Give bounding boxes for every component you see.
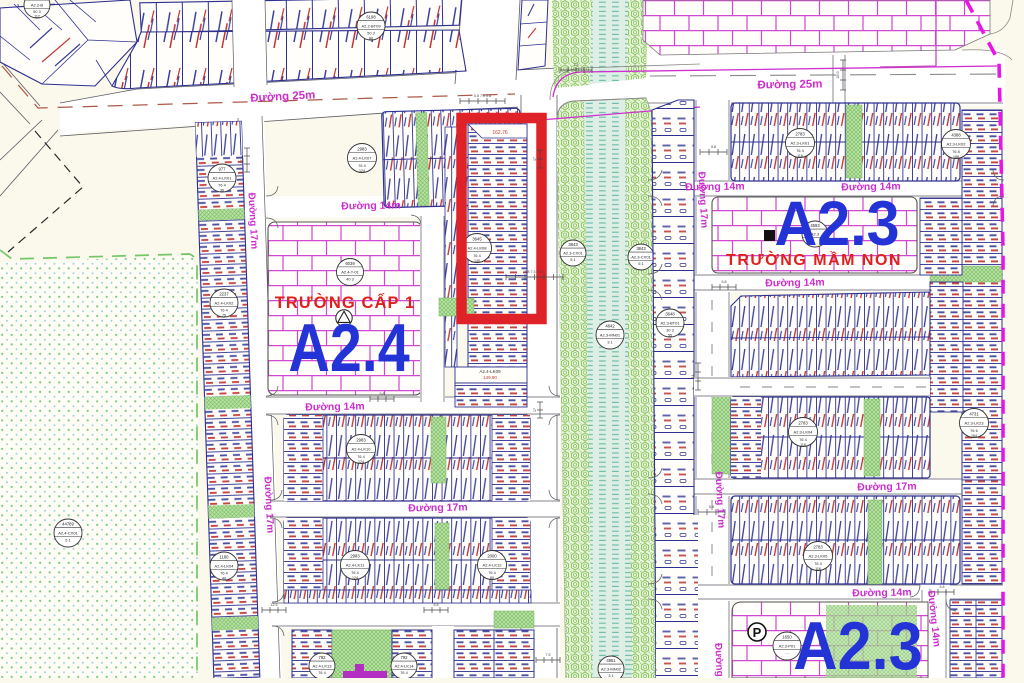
svg-text:76 4: 76 4 (358, 164, 365, 168)
svg-text:17: 17 (533, 408, 537, 412)
svg-text:76 6: 76 6 (970, 429, 977, 433)
svg-text:A2.3-LK23: A2.3-LK23 (965, 421, 985, 426)
svg-text:792: 792 (319, 655, 327, 660)
svg-text:A2.3-LK01: A2.3-LK01 (791, 141, 811, 146)
svg-text:7.5: 7.5 (574, 63, 579, 67)
svg-text:76 4: 76 4 (218, 184, 225, 188)
svg-text:A2.3: A2.3 (793, 607, 922, 678)
svg-text:60: 60 (369, 36, 373, 40)
svg-text:76 4: 76 4 (814, 562, 821, 566)
svg-text:124: 124 (359, 169, 365, 173)
svg-text:A2.3-LK02: A2.3-LK02 (947, 142, 967, 147)
svg-text:3843: 3843 (636, 246, 646, 251)
svg-text:A2.4-LK09: A2.4-LK09 (479, 369, 501, 374)
svg-text:76 4: 76 4 (220, 572, 227, 576)
svg-text:A2.4-T-01: A2.4-T-01 (341, 270, 359, 275)
svg-text:184: 184 (971, 434, 977, 438)
svg-text:5.8 7.5 5 5.0: 5.8 7.5 5 5.0 (525, 270, 545, 274)
svg-text:A2.4-LK10: A2.4-LK10 (352, 447, 372, 452)
svg-text:40: 40 (222, 576, 226, 580)
svg-text:3 1: 3 1 (608, 674, 613, 678)
svg-text:140: 140 (474, 259, 480, 263)
svg-text:TRƯỜNG CẤP 1: TRƯỜNG CẤP 1 (275, 293, 416, 312)
svg-text:5.8: 5.8 (434, 603, 439, 607)
svg-text:A2.3-LK05: A2.3-LK05 (809, 554, 829, 559)
svg-text:A2.4-LK12: A2.4-LK12 (483, 563, 503, 568)
svg-text:2000: 2000 (487, 553, 497, 558)
svg-text:116: 116 (815, 567, 821, 571)
svg-text:36: 36 (220, 188, 224, 192)
svg-text:7.5: 7.5 (546, 653, 551, 657)
svg-text:60: 60 (490, 576, 494, 580)
svg-text:A2.4-LK01: A2.4-LK01 (213, 176, 233, 181)
svg-text:A2.3-BT01: A2.3-BT01 (660, 321, 680, 326)
svg-text:5.8: 5.8 (940, 585, 945, 589)
svg-text:5.8 7.0 5.8: 5.8 7.0 5.8 (474, 94, 491, 98)
svg-text:2237: 2237 (219, 292, 229, 297)
svg-text:Đường 14m: Đường 14m (852, 586, 912, 599)
svg-text:5.8: 5.8 (380, 392, 385, 396)
svg-text:Đường 17m: Đường 17m (857, 480, 917, 493)
svg-text:Đường 14m: Đường 14m (685, 180, 745, 193)
svg-text:3843: 3843 (568, 242, 578, 247)
svg-text:162.76: 162.76 (492, 130, 508, 136)
svg-text:44789: 44789 (62, 522, 74, 527)
svg-text:76 4: 76 4 (488, 571, 495, 575)
svg-text:2783: 2783 (795, 131, 805, 136)
svg-text:5.8: 5.8 (711, 145, 716, 149)
svg-text:75: 75 (222, 313, 226, 317)
svg-text:Đường 14m: Đường 14m (341, 199, 401, 212)
svg-text:76 4: 76 4 (220, 309, 227, 313)
svg-text:4842: 4842 (605, 324, 615, 329)
svg-text:A2.3-MN01: A2.3-MN01 (600, 333, 621, 338)
svg-text:3645: 3645 (472, 236, 482, 241)
svg-text:116: 116 (800, 443, 806, 447)
svg-text:5 1: 5 1 (65, 539, 70, 543)
svg-text:A2.4-LK08: A2.4-LK08 (468, 246, 488, 251)
svg-text:A2.4-LK14: A2.4-LK14 (395, 664, 415, 669)
svg-text:Đường 14m: Đường 14m (305, 400, 365, 413)
svg-text:76 4: 76 4 (318, 671, 325, 675)
svg-text:3 1: 3 1 (607, 341, 612, 345)
svg-text:116: 116 (797, 154, 803, 158)
svg-text:55: 55 (668, 333, 672, 337)
svg-text:112: 112 (34, 14, 40, 18)
svg-text:124: 124 (358, 460, 364, 464)
svg-text:A2.4-LK07: A2.4-LK07 (353, 156, 373, 161)
svg-text:5 1: 5 1 (570, 258, 575, 262)
svg-text:5.8: 5.8 (722, 280, 727, 284)
svg-text:17: 17 (533, 157, 537, 161)
svg-text:A2.4-LK04: A2.4-LK04 (215, 564, 235, 569)
svg-text:2983: 2983 (357, 146, 367, 151)
svg-text:40 3: 40 3 (346, 277, 353, 281)
svg-text:2983: 2983 (356, 437, 366, 442)
svg-text:A2.4-LK11: A2.4-LK11 (346, 563, 365, 568)
svg-text:5 1: 5 1 (638, 262, 643, 266)
svg-text:188: 188 (953, 155, 959, 159)
svg-text:Đường 17m: Đường 17m (408, 501, 468, 514)
svg-text:76 8: 76 8 (952, 150, 959, 154)
svg-text:2983: 2983 (350, 553, 360, 558)
svg-text:A2.4-CX01: A2.4-CX01 (58, 531, 78, 536)
svg-text:5.8: 5.8 (709, 505, 714, 509)
svg-text:76 4: 76 4 (357, 455, 364, 459)
svg-text:1180: 1180 (219, 555, 229, 560)
svg-text:A2.3: A2.3 (774, 188, 899, 258)
svg-text:14: 14 (691, 375, 695, 379)
svg-text:25.0: 25.0 (836, 72, 840, 79)
svg-text:12.5: 12.5 (271, 603, 278, 607)
svg-text:A2.3-CX01: A2.3-CX01 (631, 255, 651, 260)
svg-text:76 4: 76 4 (796, 149, 803, 153)
svg-text:A2.4-LK13: A2.4-LK13 (313, 664, 333, 669)
svg-text:Đường 14m: Đường 14m (841, 180, 901, 193)
svg-text:50 3: 50 3 (367, 32, 374, 36)
svg-text:A2.3-MN02: A2.3-MN02 (601, 667, 622, 672)
svg-text:2783: 2783 (798, 420, 808, 425)
svg-text:Đường 25m: Đường 25m (757, 78, 822, 91)
svg-text:4388: 4388 (951, 132, 961, 137)
svg-text:76 4: 76 4 (400, 671, 407, 675)
svg-text:3648: 3648 (665, 312, 675, 317)
svg-text:P: P (753, 625, 762, 640)
svg-text:2783: 2783 (813, 544, 823, 549)
svg-text:A2.2-B: A2.2-B (31, 3, 44, 8)
svg-text:792: 792 (401, 655, 409, 660)
svg-text:6198: 6198 (366, 15, 376, 20)
svg-text:6039: 6039 (345, 261, 355, 266)
svg-text:124: 124 (352, 576, 358, 580)
svg-text:A2.4-LK02: A2.4-LK02 (215, 301, 235, 306)
svg-text:17.0: 17.0 (240, 157, 244, 164)
svg-text:1650: 1650 (782, 635, 792, 640)
svg-text:TRƯỜNG MẦM NON: TRƯỜNG MẦM NON (726, 250, 902, 269)
svg-text:A2.2-BT09: A2.2-BT09 (361, 24, 381, 29)
svg-text:A2.3-LK04: A2.3-LK04 (794, 430, 814, 435)
svg-text:Đường 14m: Đường 14m (765, 276, 825, 289)
svg-text:977: 977 (219, 167, 227, 172)
svg-text:4731: 4731 (969, 411, 979, 416)
svg-text:Đường: Đường (712, 643, 725, 677)
svg-text:30 3: 30 3 (666, 329, 673, 333)
svg-text:76 4: 76 4 (351, 571, 358, 575)
svg-text:76 4: 76 4 (473, 254, 480, 258)
svg-text:4951: 4951 (606, 658, 616, 663)
svg-text:A2.3-CX01: A2.3-CX01 (563, 251, 583, 256)
svg-text:A2.4: A2.4 (288, 311, 409, 387)
svg-text:76 4: 76 4 (799, 438, 806, 442)
svg-text:149.90: 149.90 (483, 375, 497, 380)
